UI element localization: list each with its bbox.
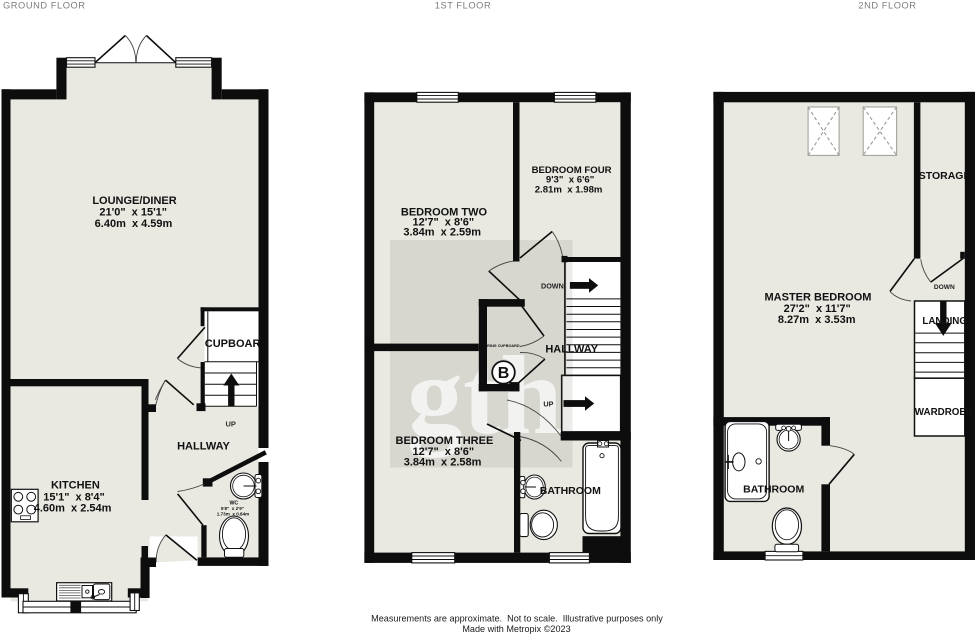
svg-text:BATHROOM: BATHROOM (743, 484, 804, 496)
svg-text:AIRING CUPBOARD: AIRING CUPBOARD (483, 344, 520, 348)
svg-text:Measurements are approximate.: Measurements are approximate. Not to sca… (371, 614, 663, 624)
svg-text:2ND FLOOR: 2ND FLOOR (858, 1, 916, 11)
svg-text:3.84m x 2.59m: 3.84m x 2.59m (403, 227, 481, 239)
svg-text:MASTER BEDROOM: MASTER BEDROOM (765, 292, 872, 304)
svg-text:B: B (498, 365, 510, 382)
svg-text:UP: UP (225, 419, 235, 428)
svg-text:DOWN: DOWN (934, 284, 955, 291)
svg-text:15'1" x 8'4": 15'1" x 8'4" (43, 491, 105, 503)
svg-text:GROUND FLOOR: GROUND FLOOR (3, 1, 86, 11)
svg-text:4.60m x 2.54m: 4.60m x 2.54m (34, 503, 112, 515)
svg-text:HALLWAY: HALLWAY (177, 441, 230, 453)
svg-text:21'0" x 15'1": 21'0" x 15'1" (99, 207, 167, 219)
svg-text:1ST FLOOR: 1ST FLOOR (435, 1, 491, 11)
svg-text:WARDROBE: WARDROBE (915, 407, 974, 418)
svg-text:1.73m x 0.84m: 1.73m x 0.84m (217, 512, 249, 517)
svg-text:3.84m x 2.58m: 3.84m x 2.58m (404, 457, 482, 469)
svg-text:5'8" x 2'9": 5'8" x 2'9" (221, 506, 244, 511)
svg-text:8.27m x 3.53m: 8.27m x 3.53m (778, 314, 856, 326)
svg-text:6.40m x 4.59m: 6.40m x 4.59m (95, 218, 173, 230)
svg-text:BATHROOM: BATHROOM (540, 485, 601, 497)
svg-text:HALLWAY: HALLWAY (545, 343, 598, 355)
svg-text:Made with Metropix ©2023: Made with Metropix ©2023 (462, 624, 570, 634)
svg-text:UP: UP (543, 400, 553, 409)
svg-text:STORAGE: STORAGE (919, 170, 971, 182)
svg-text:2.81m x 1.98m: 2.81m x 1.98m (535, 184, 603, 195)
svg-text:LOUNGE/DINER: LOUNGE/DINER (92, 195, 176, 207)
svg-text:KITCHEN: KITCHEN (51, 479, 100, 491)
svg-text:DOWN: DOWN (541, 282, 564, 291)
